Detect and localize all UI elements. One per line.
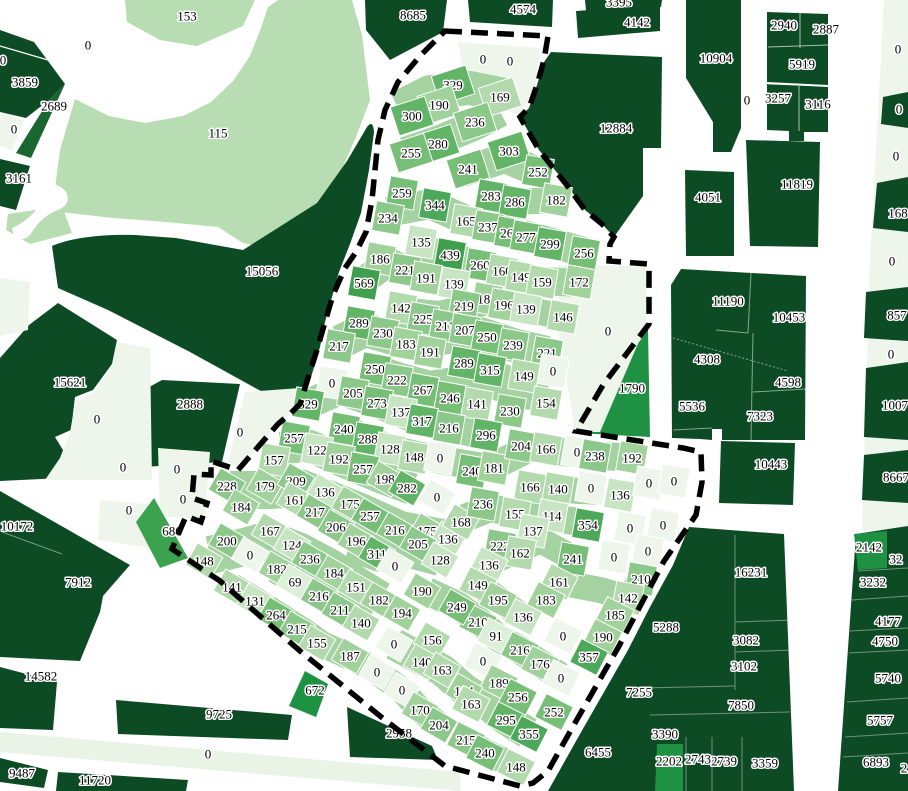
svg-text:141: 141 [467,397,487,412]
svg-text:355: 355 [519,727,539,742]
svg-text:317: 317 [412,414,432,429]
svg-text:0: 0 [434,490,441,505]
svg-text:257: 257 [284,431,304,446]
svg-text:184: 184 [231,500,251,515]
svg-text:300: 300 [402,109,422,124]
svg-text:273: 273 [367,396,387,411]
svg-text:4051: 4051 [695,190,721,205]
svg-text:122: 122 [307,443,327,458]
svg-text:1790: 1790 [619,381,645,396]
svg-text:2888: 2888 [177,397,203,412]
svg-text:286: 286 [505,195,525,210]
svg-text:3116: 3116 [805,97,831,112]
svg-text:182: 182 [369,593,389,608]
svg-text:7850: 7850 [728,698,754,713]
svg-text:0: 0 [611,550,618,565]
svg-text:6893: 6893 [863,755,889,770]
svg-text:0: 0 [895,42,902,57]
svg-text:10443: 10443 [755,457,788,472]
svg-text:256: 256 [574,246,594,261]
svg-text:148: 148 [404,450,424,465]
svg-text:0: 0 [237,425,244,440]
svg-text:140: 140 [548,482,568,497]
svg-text:155: 155 [307,636,327,651]
svg-text:0: 0 [120,460,127,475]
svg-text:192: 192 [622,451,642,466]
svg-text:238: 238 [585,449,605,464]
svg-text:206: 206 [326,520,346,535]
svg-text:131: 131 [245,594,265,609]
svg-text:230: 230 [500,404,520,419]
svg-text:140: 140 [351,616,371,631]
svg-text:10172: 10172 [1,519,34,534]
svg-text:159: 159 [532,275,552,290]
svg-text:0: 0 [646,476,653,491]
svg-text:179: 179 [255,479,275,494]
svg-text:267: 267 [413,383,433,398]
svg-text:15056: 15056 [246,264,279,279]
svg-text:296: 296 [476,428,496,443]
svg-text:9725: 9725 [206,707,232,722]
svg-text:149: 149 [468,578,488,593]
svg-text:205: 205 [343,386,363,401]
svg-text:136: 136 [315,485,335,500]
svg-text:0: 0 [574,445,581,460]
svg-text:0: 0 [588,481,595,496]
svg-text:136: 136 [479,558,499,573]
svg-text:0: 0 [180,492,187,507]
svg-text:196: 196 [346,534,366,549]
svg-text:0: 0 [896,102,903,117]
svg-text:12884: 12884 [600,121,633,136]
svg-text:237: 237 [478,220,498,235]
svg-text:136: 136 [513,610,533,625]
svg-text:249: 249 [447,600,467,615]
svg-text:16231: 16231 [735,565,768,580]
svg-text:4598: 4598 [775,375,801,390]
svg-text:315: 315 [480,363,500,378]
svg-text:241: 241 [458,162,478,177]
svg-text:8685: 8685 [400,8,426,23]
svg-text:205: 205 [408,537,428,552]
svg-text:239: 239 [503,338,523,353]
svg-text:255: 255 [401,146,421,161]
svg-text:439: 439 [440,248,460,263]
svg-text:142: 142 [391,301,411,316]
svg-text:260: 260 [470,258,490,273]
svg-text:192: 192 [329,452,349,467]
svg-text:236: 236 [473,497,493,512]
svg-text:14582: 14582 [25,669,58,684]
svg-text:0: 0 [893,149,900,164]
svg-text:176: 176 [530,657,550,672]
svg-text:672: 672 [305,683,325,698]
svg-text:0: 0 [627,521,634,536]
svg-text:0: 0 [399,683,406,698]
svg-text:2142: 2142 [856,540,882,555]
svg-text:215: 215 [287,622,307,637]
svg-text:136: 136 [610,488,630,503]
svg-text:115: 115 [208,126,227,141]
svg-text:128: 128 [430,553,450,568]
svg-text:185: 185 [605,608,625,623]
svg-text:217: 217 [305,505,325,520]
svg-text:0: 0 [329,376,336,391]
svg-text:344: 344 [425,198,445,213]
svg-text:277: 277 [516,230,536,245]
svg-text:4142: 4142 [624,15,650,30]
svg-text:257: 257 [360,509,380,524]
svg-text:7912: 7912 [65,575,91,590]
svg-text:0: 0 [94,412,101,427]
svg-text:137: 137 [523,524,543,539]
svg-text:191: 191 [416,271,436,286]
svg-text:0: 0 [671,474,678,489]
svg-text:0: 0 [480,654,487,669]
svg-text:165: 165 [456,214,476,229]
svg-text:3390: 3390 [652,727,678,742]
svg-text:0: 0 [558,671,565,686]
svg-text:183: 183 [536,593,556,608]
svg-text:217: 217 [329,339,349,354]
svg-text:259: 259 [392,186,412,201]
svg-text:7255: 7255 [626,685,652,700]
svg-text:167: 167 [260,524,280,539]
svg-text:182: 182 [546,193,566,208]
svg-text:6455: 6455 [585,745,611,760]
svg-text:166: 166 [520,480,540,495]
svg-text:230: 230 [373,326,393,341]
svg-text:139: 139 [516,302,536,317]
svg-text:4308: 4308 [694,352,720,367]
svg-text:136: 136 [438,532,458,547]
svg-text:190: 190 [429,98,449,113]
svg-text:0: 0 [205,747,212,762]
svg-text:5919: 5919 [789,57,815,72]
svg-text:2202: 2202 [656,754,682,769]
svg-text:157: 157 [264,453,284,468]
svg-text:181: 181 [484,461,504,476]
svg-text:225: 225 [413,312,433,327]
svg-text:283: 283 [481,189,501,204]
svg-text:0: 0 [889,254,896,269]
svg-text:282: 282 [397,481,417,496]
svg-text:190: 190 [412,584,432,599]
svg-text:0: 0 [11,122,18,137]
svg-text:0: 0 [560,629,567,644]
svg-text:357: 357 [579,650,599,665]
svg-text:241: 241 [563,552,583,567]
svg-text:10453: 10453 [773,310,806,325]
svg-text:187: 187 [340,649,360,664]
svg-text:246: 246 [440,391,460,406]
svg-text:3257: 3257 [765,91,792,106]
svg-text:4574: 4574 [510,2,537,17]
svg-text:3859: 3859 [12,75,38,90]
svg-text:186: 186 [370,252,390,267]
svg-text:15621: 15621 [54,375,87,390]
svg-text:289: 289 [454,356,474,371]
svg-text:154: 154 [536,396,556,411]
svg-text:128: 128 [380,442,400,457]
svg-text:69: 69 [289,575,302,590]
svg-text:207: 207 [455,323,475,338]
svg-text:190: 190 [593,630,613,645]
svg-text:252: 252 [544,705,564,720]
svg-text:354: 354 [578,518,598,533]
svg-text:288: 288 [358,432,378,447]
svg-text:3232: 3232 [860,575,886,590]
svg-text:236: 236 [300,552,320,567]
svg-text:289: 289 [349,316,369,331]
svg-text:194: 194 [392,606,412,621]
svg-text:2940: 2940 [771,18,797,33]
svg-text:3359: 3359 [752,756,778,771]
svg-text:163: 163 [461,697,481,712]
svg-text:257: 257 [353,462,373,477]
svg-text:146: 146 [553,310,573,325]
svg-text:222: 222 [387,373,407,388]
svg-text:0: 0 [645,544,652,559]
svg-text:0: 0 [174,462,181,477]
svg-text:280: 280 [428,137,448,152]
svg-text:256: 256 [508,690,528,705]
svg-text:11819: 11819 [781,177,813,192]
svg-text:11190: 11190 [712,294,744,309]
svg-text:153: 153 [177,9,197,24]
svg-text:303: 303 [499,144,519,159]
svg-text:4750: 4750 [872,634,898,649]
svg-text:0: 0 [126,503,133,518]
svg-text:0: 0 [660,518,667,533]
svg-text:195: 195 [488,593,508,608]
svg-text:163: 163 [432,663,452,678]
svg-text:5757: 5757 [867,713,894,728]
svg-text:191: 191 [420,345,440,360]
svg-text:166: 166 [536,442,556,457]
svg-text:5288: 5288 [653,620,679,635]
svg-text:10904: 10904 [700,51,733,66]
svg-text:0: 0 [888,347,895,362]
svg-text:162: 162 [510,546,530,561]
svg-text:8667: 8667 [883,470,908,485]
svg-text:295: 295 [496,713,516,728]
svg-text:11720: 11720 [79,773,111,788]
svg-text:2689: 2689 [41,99,67,114]
svg-text:169: 169 [490,90,510,105]
svg-text:0: 0 [437,451,444,466]
svg-text:200: 200 [217,534,237,549]
svg-text:0: 0 [391,637,398,652]
svg-text:3161: 3161 [6,171,32,186]
svg-text:156: 156 [422,633,442,648]
svg-text:172: 172 [569,275,589,290]
svg-text:1007: 1007 [882,398,908,413]
svg-text:0: 0 [0,53,6,68]
svg-text:0: 0 [605,324,612,339]
svg-text:250: 250 [365,362,385,377]
svg-text:211: 211 [330,603,349,618]
svg-text:0: 0 [392,559,399,574]
svg-text:0: 0 [550,364,557,379]
svg-text:250: 250 [477,330,497,345]
svg-text:9487: 9487 [9,766,36,781]
svg-text:2743: 2743 [685,752,711,767]
svg-text:236: 236 [465,115,485,130]
svg-text:149: 149 [514,369,534,384]
svg-text:5536: 5536 [679,399,706,414]
svg-text:219: 219 [454,299,474,314]
svg-text:2739: 2739 [711,754,737,769]
svg-text:252: 252 [528,165,548,180]
svg-text:264: 264 [266,608,286,623]
svg-text:0: 0 [374,665,381,680]
svg-text:151: 151 [346,580,366,595]
svg-text:204: 204 [429,718,449,733]
svg-text:0: 0 [507,54,514,69]
svg-text:216: 216 [439,421,459,436]
svg-text:857: 857 [887,308,907,323]
svg-text:569: 569 [354,276,374,291]
svg-text:2887: 2887 [813,22,840,37]
svg-text:2: 2 [901,761,908,776]
svg-text:148: 148 [506,760,526,775]
svg-text:234: 234 [378,211,398,226]
svg-text:161: 161 [549,575,569,590]
svg-text:184: 184 [324,566,344,581]
svg-text:168: 168 [888,206,908,221]
svg-text:170: 170 [410,703,430,718]
svg-text:240: 240 [475,746,495,761]
svg-text:299: 299 [540,237,560,252]
svg-text:91: 91 [490,629,503,644]
svg-text:204: 204 [511,439,531,454]
svg-text:183: 183 [396,337,416,352]
svg-text:32: 32 [890,552,903,567]
svg-text:216: 216 [309,589,329,604]
svg-text:0: 0 [247,548,254,563]
svg-text:216: 216 [385,523,405,538]
svg-text:5740: 5740 [875,671,901,686]
svg-text:135: 135 [411,235,431,250]
svg-text:4177: 4177 [875,614,902,629]
svg-text:198: 198 [375,472,395,487]
svg-text:0: 0 [85,38,92,53]
svg-text:240: 240 [334,422,354,437]
svg-text:3082: 3082 [733,633,759,648]
svg-text:0: 0 [480,52,487,67]
svg-text:0: 0 [744,93,751,108]
